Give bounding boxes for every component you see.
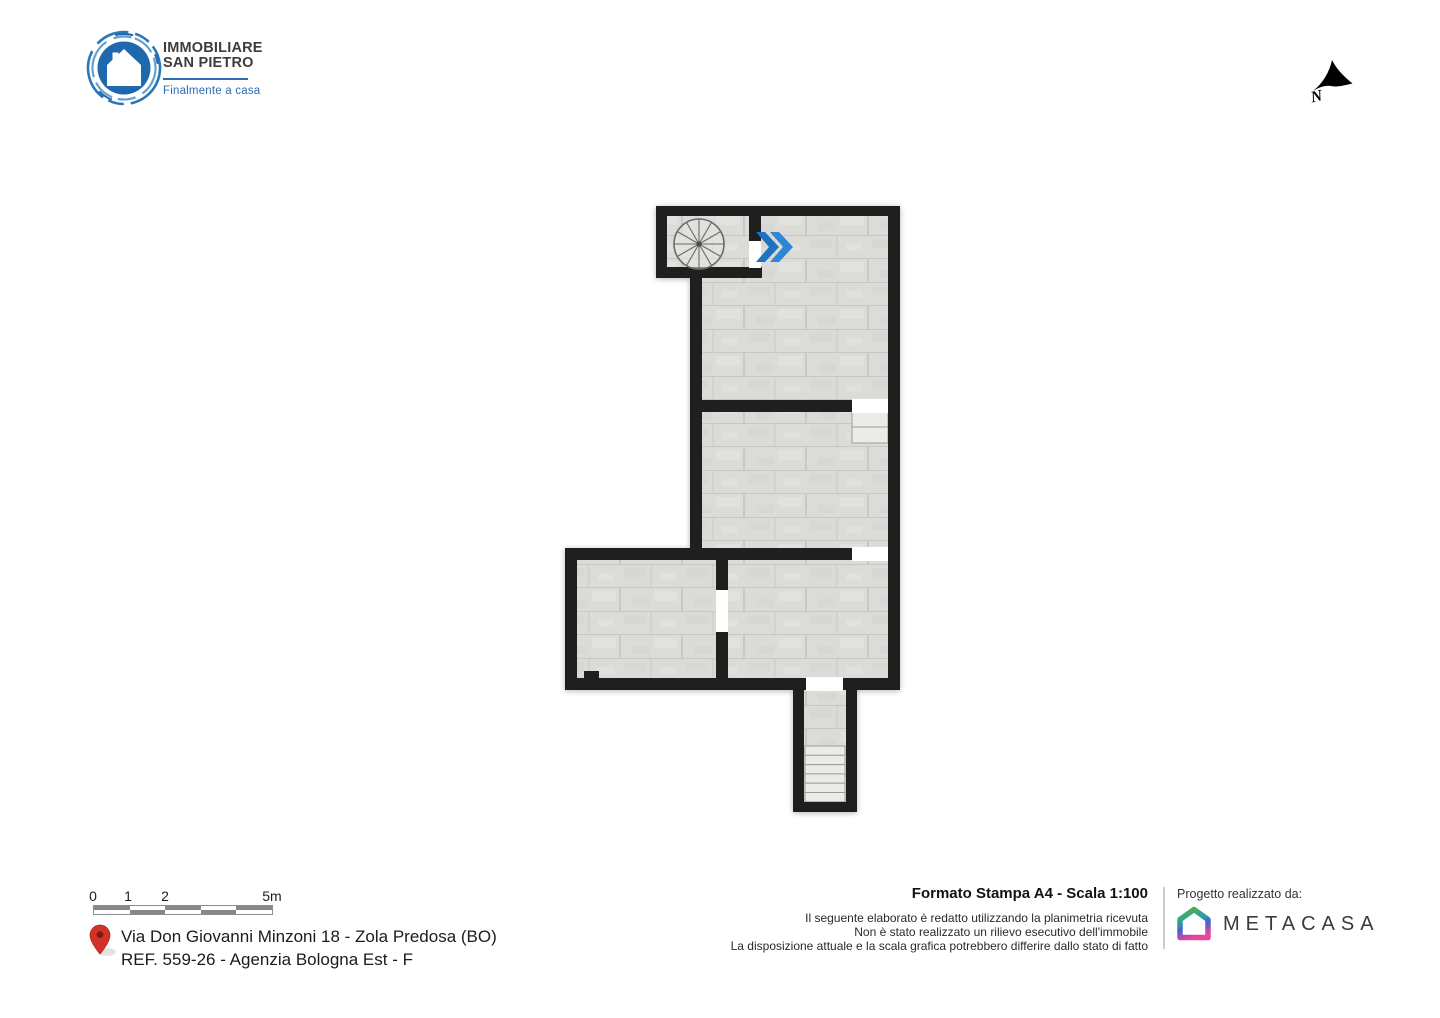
scale-label-1: 1 <box>124 888 132 904</box>
wall-vestibule-stub <box>749 206 761 242</box>
wall-left-main <box>690 267 702 560</box>
wall-corridor-right <box>846 678 857 812</box>
door-middle-right <box>852 547 888 561</box>
agency-logo-icon <box>84 28 164 108</box>
floorplan-page: IMMOBILIARE SAN PIETRO Finalmente a casa… <box>0 0 1440 1018</box>
north-arrow-icon: N <box>1300 50 1360 112</box>
metacasa-logo-icon <box>1177 906 1211 942</box>
scale-label-5m: 5m <box>262 888 281 904</box>
agency-tagline: Finalmente a casa <box>163 85 263 97</box>
wall-divider-upper <box>690 400 852 412</box>
agency-name: IMMOBILIARE SAN PIETRO Finalmente a casa <box>163 41 263 97</box>
wall-top <box>656 206 900 216</box>
door-upper-right <box>852 399 888 413</box>
stairs-bottom <box>805 746 845 802</box>
north-label: N <box>1308 87 1325 107</box>
door-corridor <box>806 677 843 691</box>
wall-vestibule-bottom <box>656 267 762 278</box>
scale-label-0: 0 <box>89 888 97 904</box>
stairs-mid-right <box>852 412 888 443</box>
location-pin-icon <box>89 924 119 958</box>
door-vestibule <box>749 241 761 268</box>
credit-label: Progetto realizzato da: <box>1177 887 1380 901</box>
floorplan-drawing <box>558 198 908 820</box>
address-line2: REF. 559-26 - Agenzia Bologna Est - F <box>121 949 497 972</box>
wall-corridor-left <box>793 678 804 812</box>
floor-bottom-rooms <box>569 552 896 684</box>
address-line1: Via Don Giovanni Minzoni 18 - Zola Predo… <box>121 926 497 949</box>
disclaimer-line1: Il seguente elaborato è redatto utilizza… <box>528 912 1148 926</box>
wall-right <box>888 206 900 690</box>
scale-label-2: 2 <box>161 888 169 904</box>
print-format-scale: Formato Stampa A4 - Scala 1:100 <box>528 885 1148 902</box>
footer-divider <box>1163 887 1165 949</box>
wall-corridor-bottom <box>793 802 857 812</box>
credit-brand-name: METACASA <box>1223 913 1380 936</box>
wall-band-left <box>565 548 577 690</box>
disclaimer-line3: La disposizione attuale e la scala grafi… <box>528 940 1148 954</box>
spiral-staircase-icon <box>674 219 724 269</box>
credit-block: Progetto realizzato da: METACASA <box>1177 887 1380 942</box>
agency-title-line1: IMMOBILIARE <box>163 41 263 56</box>
print-info: Formato Stampa A4 - Scala 1:100 Il segue… <box>528 885 1148 953</box>
door-band-divider <box>716 590 728 632</box>
wall-notch <box>584 671 599 680</box>
scale-bar <box>93 905 273 915</box>
brand-divider <box>163 78 248 80</box>
floor-main-rooms <box>694 210 896 558</box>
disclaimer-line2: Non è stato realizzato un rilievo esecut… <box>528 926 1148 940</box>
property-address: Via Don Giovanni Minzoni 18 - Zola Predo… <box>121 926 497 971</box>
agency-title-line2: SAN PIETRO <box>163 56 263 71</box>
wall-band-top <box>565 548 852 560</box>
